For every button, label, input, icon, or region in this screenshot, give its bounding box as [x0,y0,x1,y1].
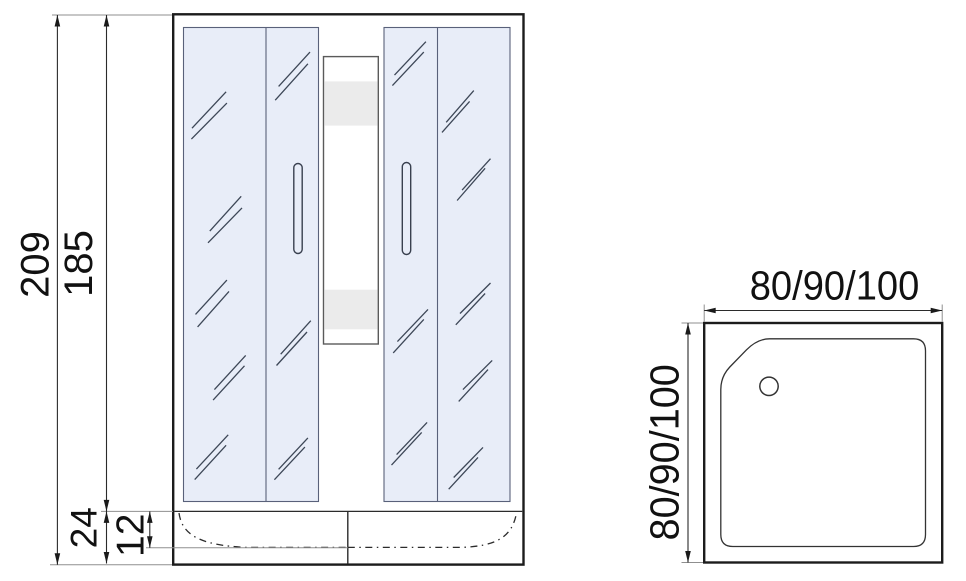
svg-text:80/90/100: 80/90/100 [750,263,920,309]
svg-text:12: 12 [110,514,153,557]
svg-text:209: 209 [14,231,58,298]
svg-text:80/90/100: 80/90/100 [641,364,688,540]
svg-text:185: 185 [57,230,101,297]
svg-text:24: 24 [64,507,105,548]
